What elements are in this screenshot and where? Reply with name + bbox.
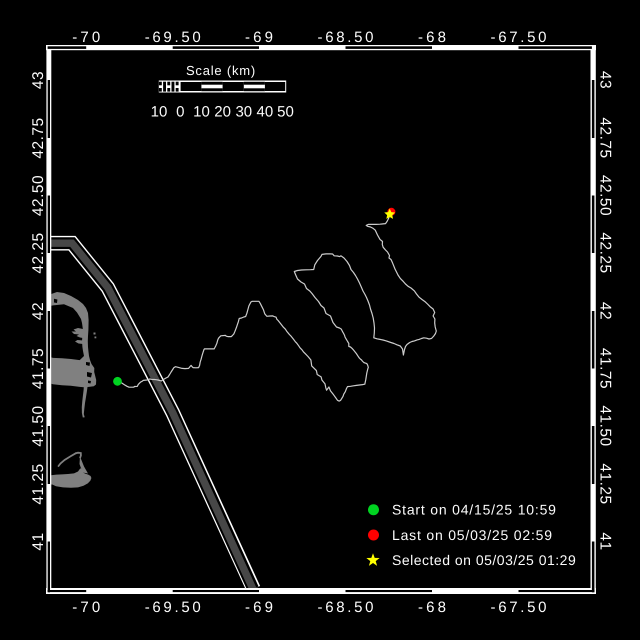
svg-text:-69: -69 [245, 599, 273, 616]
svg-text:20: 20 [214, 104, 231, 121]
svg-text:Selected on 05/03/25 01:29: Selected on 05/03/25 01:29 [392, 552, 576, 568]
svg-text:42.25: 42.25 [597, 232, 614, 273]
svg-text:42.75: 42.75 [30, 117, 47, 158]
svg-text:0: 0 [176, 104, 184, 121]
svg-text:43: 43 [30, 71, 47, 89]
svg-text:41.25: 41.25 [597, 463, 614, 504]
svg-text:Start on 04/15/25 10:59: Start on 04/15/25 10:59 [392, 502, 557, 518]
svg-text:-68: -68 [418, 599, 446, 616]
svg-text:42: 42 [597, 302, 614, 320]
svg-text:43: 43 [597, 71, 614, 89]
svg-text:50: 50 [277, 104, 294, 121]
svg-text:-69: -69 [245, 29, 273, 46]
svg-text:Scale (km): Scale (km) [186, 63, 256, 78]
svg-text:42.25: 42.25 [30, 232, 47, 273]
svg-text:10: 10 [151, 104, 168, 121]
svg-text:40: 40 [257, 104, 274, 121]
svg-text:42.50: 42.50 [597, 175, 614, 216]
svg-text:41.75: 41.75 [597, 348, 614, 389]
svg-text:41: 41 [597, 532, 614, 550]
svg-text:30: 30 [235, 104, 252, 121]
svg-text:41: 41 [30, 532, 47, 550]
svg-text:41.75: 41.75 [30, 348, 47, 389]
svg-text:-70: -70 [72, 599, 100, 616]
svg-text:42.50: 42.50 [30, 175, 47, 216]
svg-text:-70: -70 [72, 29, 100, 46]
svg-text:41.50: 41.50 [30, 405, 47, 446]
svg-text:10: 10 [193, 104, 210, 121]
svg-text:42.75: 42.75 [597, 117, 614, 158]
svg-text:41.25: 41.25 [30, 463, 47, 504]
svg-text:41.50: 41.50 [597, 405, 614, 446]
svg-text:-68: -68 [418, 29, 446, 46]
svg-text:Last on 05/03/25 02:59: Last on 05/03/25 02:59 [392, 527, 553, 543]
svg-text:42: 42 [30, 302, 47, 320]
